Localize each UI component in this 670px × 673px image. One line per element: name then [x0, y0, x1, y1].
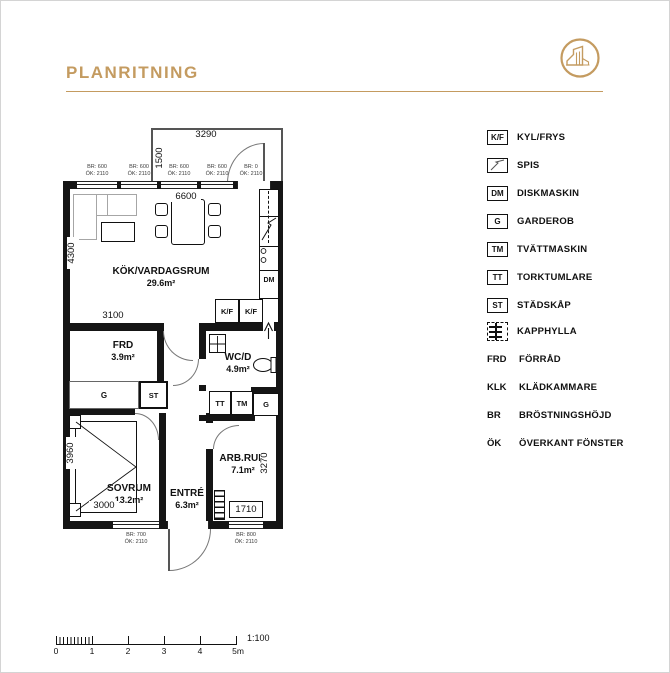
balcony-door-opening	[237, 181, 271, 189]
ok-value: ÖK: 2110	[199, 171, 235, 178]
hall-door-arc	[163, 331, 193, 361]
legend-label: DISKMASKIN	[517, 188, 579, 199]
ok-value: ÖK: 2110	[118, 539, 154, 546]
coat-rack-pole	[495, 323, 497, 340]
scale-label: 2	[123, 647, 133, 656]
scale-hatch	[56, 637, 92, 644]
scale-tick	[200, 636, 201, 644]
legend-label: TORKTUMLARE	[517, 272, 592, 283]
dim-living-width: 6600	[171, 192, 201, 202]
room-area: 6.3m²	[163, 500, 211, 510]
legend-item-kapphylla: KAPPHYLLA	[487, 323, 577, 339]
room-area: 3.9m²	[98, 352, 148, 362]
scale-tick	[164, 636, 165, 644]
wardrobe-box: G	[253, 393, 279, 416]
wall	[199, 331, 206, 359]
window-annotation: BR: 600 ÖK: 2110	[79, 164, 115, 177]
counter-divider	[260, 270, 278, 271]
wall	[63, 181, 70, 529]
scale-label: 5m	[230, 647, 246, 656]
dim-frd-width: 3100	[97, 311, 129, 321]
window-annotation: BR: 600 ÖK: 2110	[199, 164, 235, 177]
dining-table	[171, 199, 205, 245]
legend-abbr-box: TT	[487, 270, 508, 285]
washer-box: TM	[231, 391, 253, 415]
legend-label: STÄDSKÅP	[517, 300, 571, 311]
dishwasher-label: DM	[260, 277, 278, 284]
chair	[155, 225, 168, 238]
dim-bedroom-width: 3000	[89, 501, 119, 511]
dim-workroom-depth: 3270	[260, 447, 272, 479]
legend-item-tvattmaskin: TM TVÄTTMASKIN	[487, 241, 587, 257]
room-name: KÖK/VARDAGSRUM	[111, 266, 211, 278]
window-annotation: BR: 800 ÖK: 2110	[228, 532, 264, 545]
bedside-table	[69, 415, 81, 429]
room-name: ENTRÉ	[163, 488, 211, 500]
workroom-door-arc	[213, 425, 239, 449]
room-label-wc: WC/D 4.9m²	[216, 352, 260, 374]
legend-item-kylfrys: K/F KYL/FRYS	[487, 129, 565, 145]
scale-label: 1	[87, 647, 97, 656]
sofa-chaise	[73, 194, 97, 240]
coffee-table	[101, 222, 135, 242]
window	[77, 181, 117, 189]
overhead-cabinet-dashed-line	[268, 191, 269, 243]
ok-value: ÖK: 2110	[161, 171, 197, 178]
legend-abbr: FRD	[487, 354, 510, 365]
entrance-door-arc	[169, 529, 211, 571]
legend-abbr-box: TM	[487, 242, 508, 257]
room-area: 29.6m²	[111, 278, 211, 288]
scale-tick	[236, 636, 237, 644]
window-annotation: BR: 600 ÖK: 2110	[121, 164, 157, 177]
legend-label: ÖVERKANT FÖNSTER	[519, 438, 624, 449]
wall	[199, 415, 255, 421]
ok-value: ÖK: 2110	[121, 171, 157, 178]
legend-item-garderob: G GARDEROB	[487, 213, 574, 229]
wardrobe-box: G	[69, 381, 139, 409]
legend-label: KLÄDKAMMARE	[519, 382, 597, 393]
room-name: FRD	[98, 340, 148, 352]
washbasin	[209, 334, 226, 353]
window	[161, 181, 197, 189]
chair	[208, 203, 221, 216]
page-title: PLANRITNING	[66, 63, 199, 83]
scale-tick	[92, 636, 93, 644]
wc-door-arc	[173, 359, 199, 386]
chair	[155, 203, 168, 216]
entrance-door-opening	[167, 521, 209, 529]
legend-item-brostningshojd: BR BRÖSTNINGSHÖJD	[487, 407, 612, 423]
ok-value: ÖK: 2110	[228, 539, 264, 546]
sofa-cushion-line	[107, 194, 108, 216]
room-area: 4.9m²	[216, 364, 260, 374]
legend-label: TVÄTTMASKIN	[517, 244, 587, 255]
freezer-box: K/F	[239, 299, 263, 323]
coat-rack	[214, 490, 225, 520]
dim-balcony-width: 3290	[186, 130, 226, 140]
header-divider	[66, 91, 603, 92]
legend-label: KYL/FRYS	[517, 132, 565, 143]
room-name: WC/D	[216, 352, 260, 364]
legend-item-spis: SPIS	[487, 157, 539, 173]
legend-label: SPIS	[517, 160, 539, 171]
window-annotation: BR: 600 ÖK: 2110	[161, 164, 197, 177]
counter-divider	[260, 216, 278, 217]
scale-label: 3	[159, 647, 169, 656]
legend-item-kladkammare: KLK KLÄDKAMMARE	[487, 379, 597, 395]
wall	[206, 449, 213, 521]
legend-abbr-box: ST	[487, 298, 508, 313]
dryer-box: TT	[209, 391, 231, 415]
wall	[199, 385, 206, 391]
stove-icon	[487, 158, 508, 173]
scale-label: 4	[195, 647, 205, 656]
legend-item-overkant-fonster: ÖK ÖVERKANT FÖNSTER	[487, 435, 624, 451]
scale-baseline	[56, 644, 237, 645]
entrance-door-leaf	[168, 529, 170, 571]
ok-value: ÖK: 2110	[233, 171, 269, 178]
room-label-frd: FRD 3.9m²	[98, 340, 148, 362]
ok-value: ÖK: 2110	[79, 171, 115, 178]
legend-item-stadskap: ST STÄDSKÅP	[487, 297, 571, 313]
dim-workroom-window: 1710	[229, 501, 263, 518]
room-label-kitchen-living: KÖK/VARDAGSRUM 29.6m²	[111, 266, 211, 288]
legend-abbr-box: DM	[487, 186, 508, 201]
balcony-door-leaf	[263, 143, 265, 183]
fridge-box: K/F	[215, 299, 239, 323]
window-annotation: BR: 700 ÖK: 2110	[118, 532, 154, 545]
wall	[199, 323, 283, 331]
legend-label: BRÖSTNINGSHÖJD	[519, 410, 612, 421]
legend-label: GARDEROB	[517, 216, 574, 227]
legend-item-torktumlare: TT TORKTUMLARE	[487, 269, 592, 285]
legend-label: KAPPHYLLA	[517, 326, 577, 337]
room-label-entry: ENTRÉ 6.3m²	[163, 488, 211, 510]
legend-label: FÖRRÅD	[519, 354, 561, 365]
company-logo-icon	[559, 37, 603, 81]
bedside-table	[69, 503, 81, 517]
legend-abbr: ÖK	[487, 438, 510, 449]
coat-rack-icon	[487, 322, 508, 341]
window	[121, 181, 157, 189]
legend-abbr-box: K/F	[487, 130, 508, 145]
window-annotation: BR: 0 ÖK: 2110	[233, 164, 269, 177]
window	[201, 181, 233, 189]
legend-item-forrad: FRD FÖRRÅD	[487, 351, 561, 367]
counter-divider	[260, 246, 278, 247]
window	[113, 521, 159, 529]
legend-abbr-box: G	[487, 214, 508, 229]
bedroom-door-arc	[135, 413, 159, 440]
scale-tick	[56, 636, 57, 644]
floorplan-page: PLANRITNING	[0, 0, 670, 673]
chair	[208, 225, 221, 238]
room-name: SOVRUM	[101, 483, 157, 495]
legend-abbr: BR	[487, 410, 510, 421]
dim-bedroom-depth: 3960	[66, 437, 78, 469]
dim-living-depth: 4300	[67, 237, 79, 269]
cleaning-closet-box: ST	[139, 381, 168, 409]
legend-item-diskmaskin: DM DISKMASKIN	[487, 185, 579, 201]
scale-tick	[128, 636, 129, 644]
window	[229, 521, 263, 529]
legend-abbr: KLK	[487, 382, 510, 393]
scale-label: 0	[51, 647, 61, 656]
wall	[69, 323, 163, 331]
scale-ratio: 1:100	[247, 634, 270, 643]
